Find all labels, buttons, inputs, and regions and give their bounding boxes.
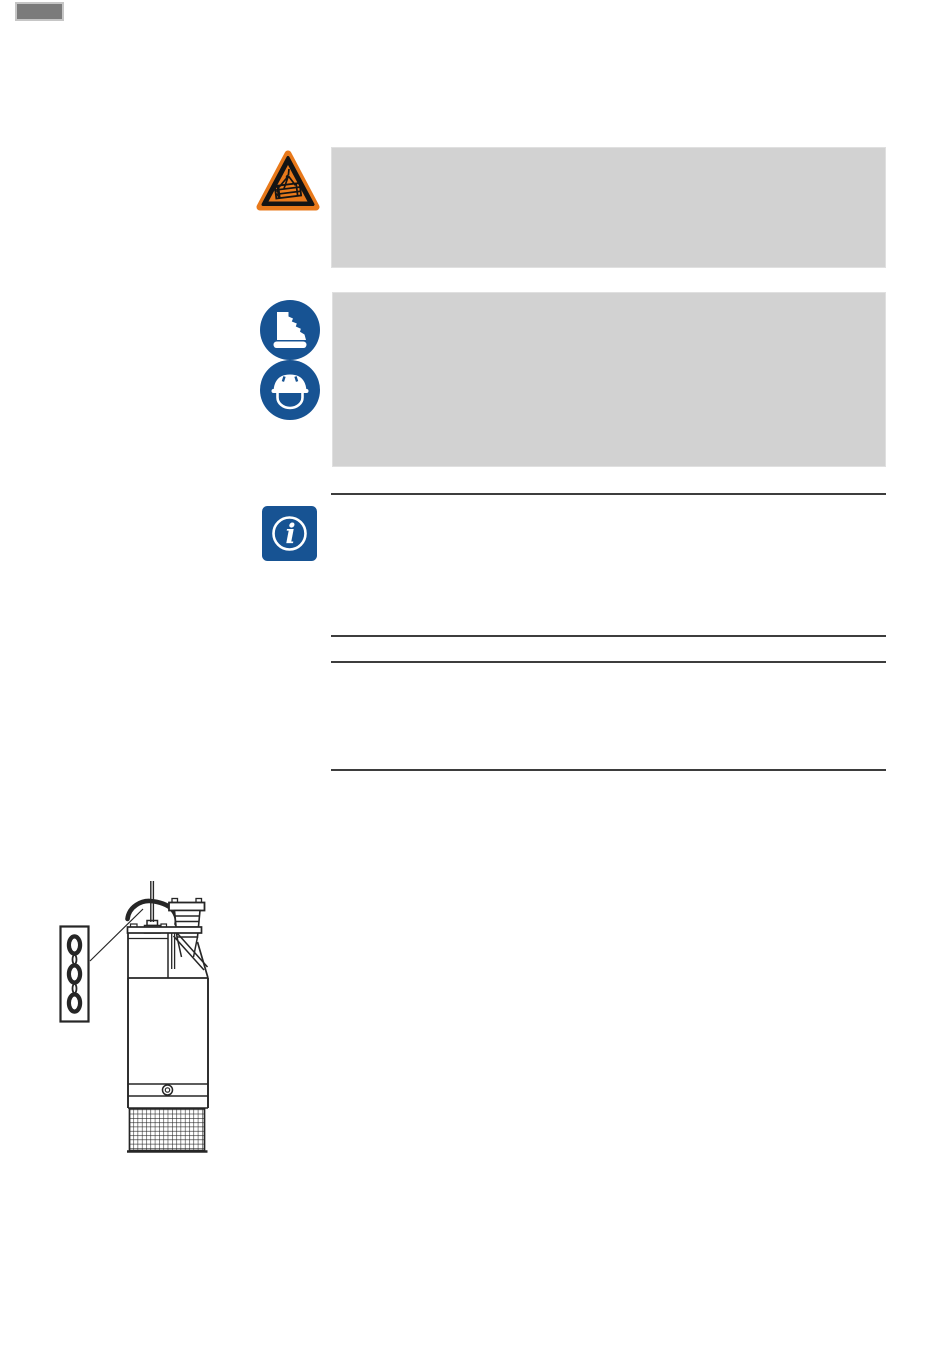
submersible-pump-figure <box>50 878 215 1160</box>
pump-body <box>128 978 208 1108</box>
rule-info-top <box>331 493 886 495</box>
rule-section-bottom <box>331 769 886 771</box>
svg-text:i: i <box>285 519 295 550</box>
rule-section-top <box>331 661 886 663</box>
warning-notice-box <box>331 147 886 268</box>
info-icon: i <box>262 506 317 561</box>
motor-housing <box>128 924 202 978</box>
suspended-load-warning-icon <box>256 149 320 216</box>
shoulder-brace <box>174 934 209 979</box>
suction-strainer <box>127 1109 208 1152</box>
safety-boots-icon <box>260 300 320 360</box>
drain-screw <box>163 1085 173 1095</box>
leader-line <box>90 909 143 961</box>
safety-helmet-icon <box>260 360 320 420</box>
ppe-notice-box <box>332 292 886 467</box>
chain-detail-box <box>61 927 89 1022</box>
page-corner-tab <box>15 2 64 21</box>
manual-page: i <box>0 0 950 1369</box>
rule-info-bottom <box>331 635 886 637</box>
